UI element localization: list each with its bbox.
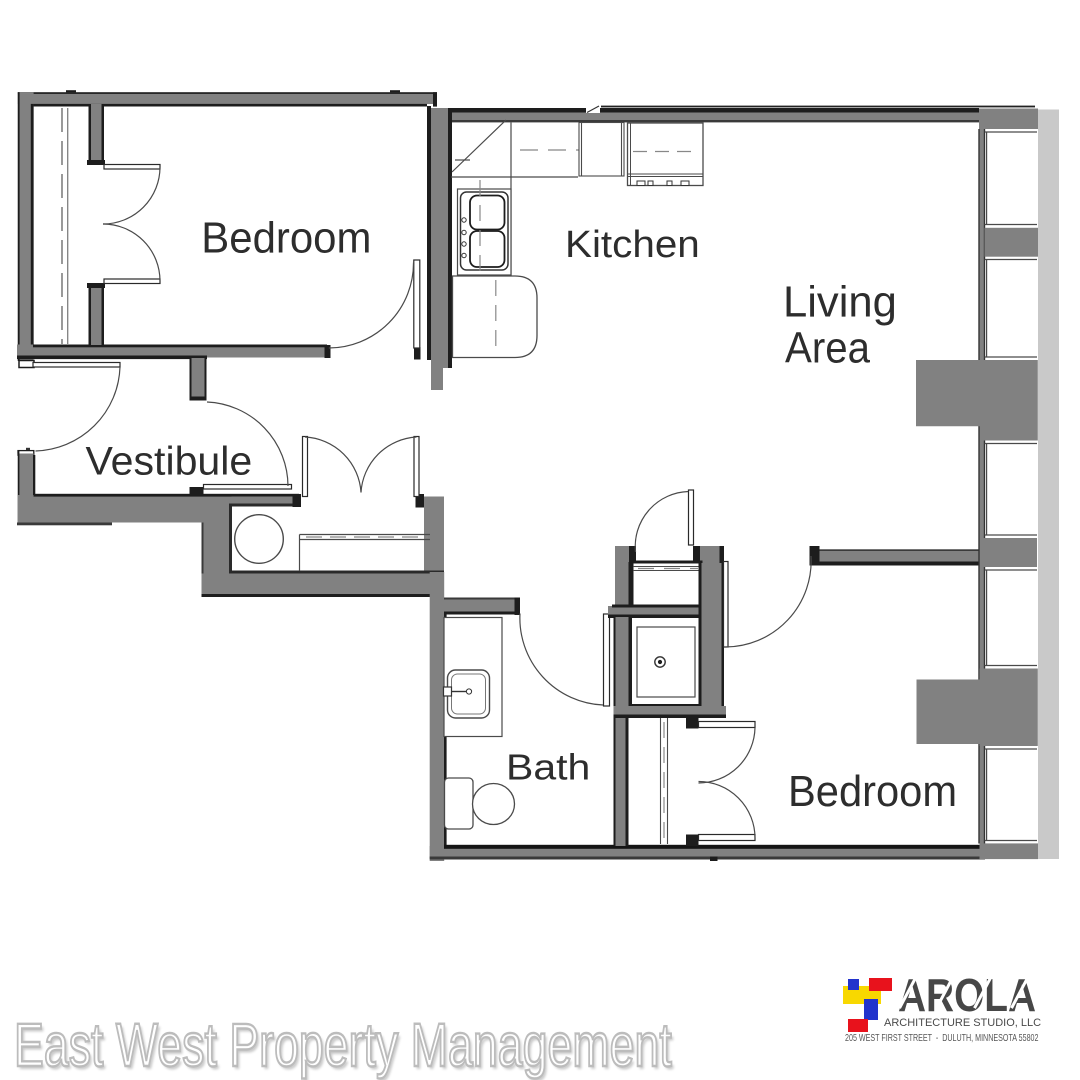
svg-text:Kitchen: Kitchen: [565, 224, 700, 265]
svg-text:Living: Living: [783, 279, 897, 327]
svg-text:Bedroom: Bedroom: [788, 767, 957, 816]
svg-text:Area: Area: [785, 323, 871, 372]
svg-text:Vestibule: Vestibule: [86, 438, 253, 484]
svg-text:Bedroom: Bedroom: [201, 214, 371, 263]
svg-text:Bath: Bath: [506, 748, 590, 788]
